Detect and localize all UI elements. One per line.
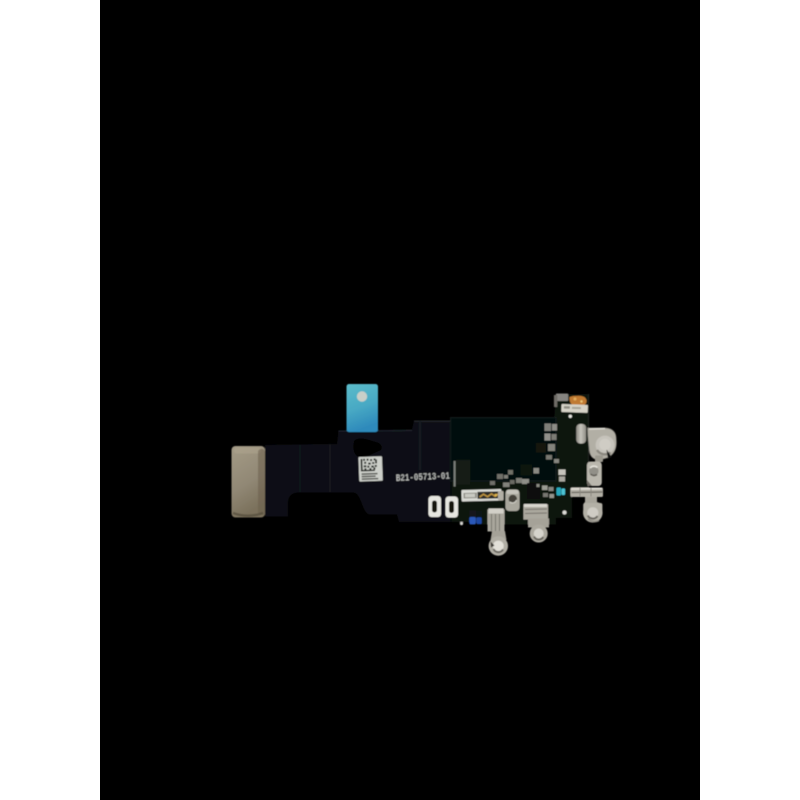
svg-text:B21-05713-01: B21-05713-01 [396, 470, 451, 483]
